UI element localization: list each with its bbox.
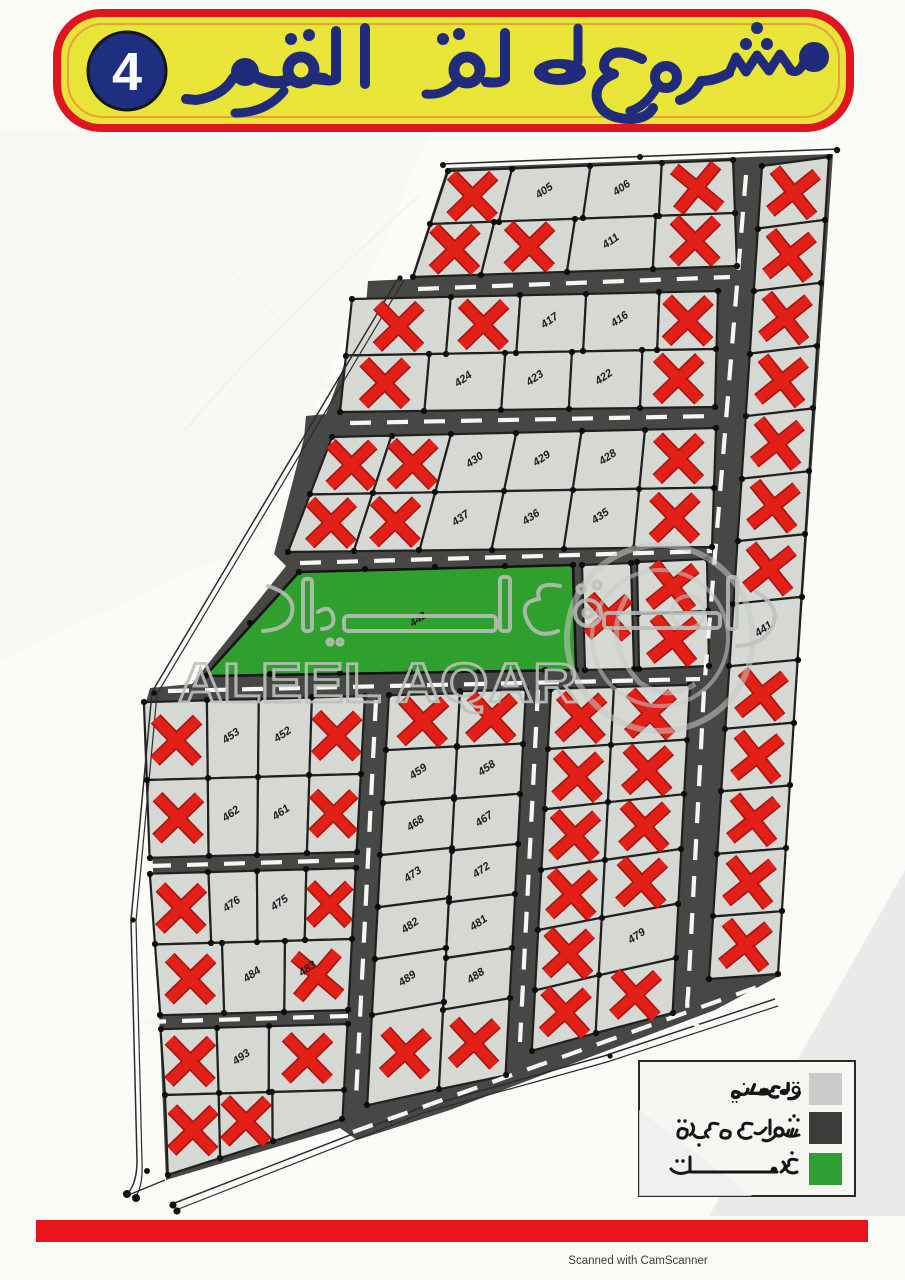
svg-text:4: 4	[112, 42, 142, 102]
svg-text:ALEEL AQAR: ALEEL AQAR	[178, 651, 578, 714]
svg-text:Scanned with CamScanner: Scanned with CamScanner	[568, 1255, 708, 1267]
